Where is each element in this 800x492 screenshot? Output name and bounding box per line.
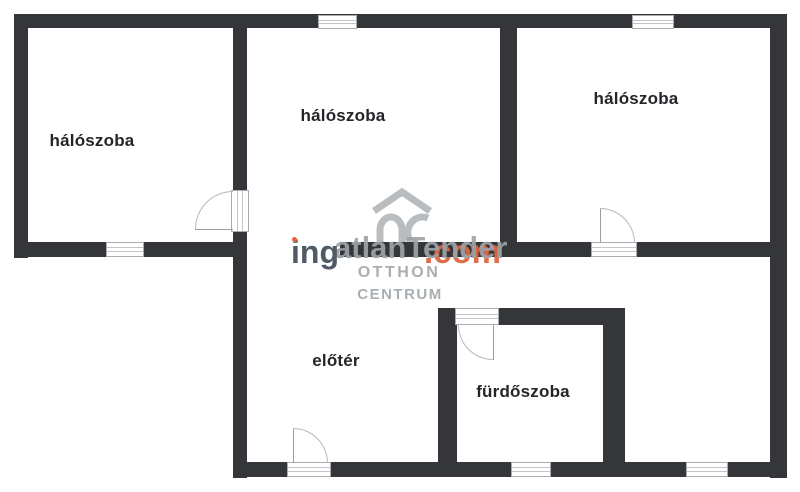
door-frame [455,308,499,325]
window-symbol [318,15,357,29]
watermark-brand-overlay: atlanTender [334,232,507,263]
door-frame [591,242,637,257]
window-symbol [511,462,551,477]
wall-right-outer [770,14,787,478]
door-frame [287,462,331,477]
watermark-i-dot [292,237,297,242]
door-frame [231,190,249,232]
wall-bathroom-right [603,308,625,463]
door-swing-arc [600,208,635,243]
wall-center-vertical [233,14,247,478]
window-symbol [686,462,728,477]
watermark-brand-prefix: ing [291,236,339,268]
door-swing-arc [458,325,493,360]
door-leaf [195,229,233,230]
wall-midrooms-vertical [500,14,517,257]
window-symbol [106,242,144,257]
room-label-bedroom-middle: hálószoba [301,106,386,126]
floor-plan: hálószoba hálószoba hálószoba előtér für… [0,0,800,492]
room-label-bathroom: fürdőszoba [476,382,570,402]
door-swing-arc [293,428,328,463]
door-swing-arc [195,191,233,229]
room-label-bedroom-left: hálószoba [50,131,135,151]
door-leaf [493,325,494,360]
wall-bathroom-left [438,308,457,463]
window-symbol [632,15,674,29]
watermark-agency-line2: CENTRUM [357,286,443,303]
room-label-bedroom-right: hálószoba [594,89,679,109]
wall-left-outer [14,14,28,258]
room-label-hall: előtér [312,351,360,371]
